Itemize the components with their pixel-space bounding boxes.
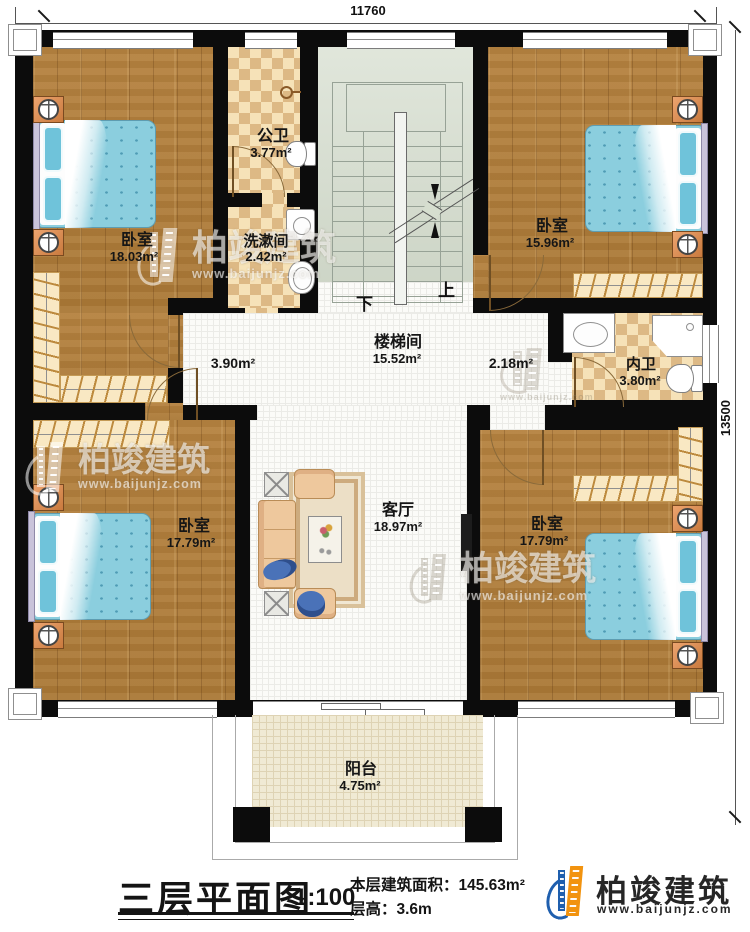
armchair — [294, 469, 335, 499]
window — [53, 32, 193, 49]
room-label: 洗漱间 — [243, 234, 288, 249]
room-area: 2.18m² — [489, 356, 533, 370]
grid-marker — [8, 688, 42, 720]
room-area: 18.03m² — [110, 250, 158, 263]
window — [347, 32, 455, 49]
stair-edge-line — [363, 132, 364, 302]
room-area: 15.96m² — [526, 236, 574, 249]
brand-url: www.baijunjz.com — [597, 902, 733, 916]
watermark-url: www.baijunjz.com — [192, 266, 336, 281]
stair-direction-arrow-up — [431, 222, 439, 238]
room-area: 3.80m² — [619, 374, 660, 387]
room-area: 17.79m² — [520, 534, 568, 547]
floor-area-text: 本层建筑面积：145.63m² — [350, 873, 525, 895]
room-label: 卧室 — [121, 233, 153, 249]
window — [518, 701, 675, 718]
door-leaf — [489, 255, 491, 311]
brand-logo-icon — [26, 442, 70, 492]
watermark-name: 柏竣建筑 — [78, 443, 210, 478]
window — [702, 325, 719, 383]
window — [245, 32, 297, 49]
window — [523, 32, 667, 49]
dimension-tick — [38, 10, 51, 23]
wardrobe — [573, 273, 703, 298]
drawing-scale: 1:100 — [294, 884, 355, 912]
door-leaf — [542, 430, 544, 485]
coffee-table — [308, 516, 342, 563]
room-area: 2.42m² — [245, 250, 286, 263]
room-label: 客厅 — [382, 503, 414, 519]
dimension-line-top — [15, 23, 717, 24]
room-label: 卧室 — [178, 519, 210, 535]
side-table — [264, 591, 289, 616]
watermark-url: www.baijunjz.com — [78, 477, 210, 491]
toilet — [666, 362, 703, 395]
dimension-top-value: 11760 — [350, 3, 385, 18]
title-underline — [118, 912, 354, 915]
nightstand — [672, 642, 703, 669]
balcony-column — [465, 807, 502, 842]
door-gap — [473, 255, 488, 298]
nightstand — [672, 96, 703, 123]
room-area: 18.97m² — [374, 520, 422, 533]
ensuite-sink-counter — [563, 313, 615, 353]
balcony-column — [233, 807, 270, 842]
side-table — [264, 472, 289, 497]
wardrobe — [573, 475, 678, 502]
wall-segment — [488, 298, 717, 313]
room-area: 17.79m² — [167, 536, 215, 549]
nightstand — [33, 229, 64, 256]
brand-logo-icon — [410, 554, 452, 600]
dimension-line-right — [735, 30, 736, 825]
wall-segment — [168, 298, 228, 313]
stair-up-label: 上 — [438, 282, 455, 299]
floor-height-text: 层高：3.6m — [350, 897, 432, 919]
room-label: 卧室 — [531, 517, 563, 533]
room-label: 公卫 — [257, 129, 289, 145]
door-gap — [490, 405, 545, 430]
title-underline — [118, 919, 354, 920]
watermark: 柏竣建筑 www.baijunjz.com — [138, 228, 336, 282]
nightstand — [33, 622, 64, 649]
door-leaf — [232, 146, 234, 197]
dimension-tick — [694, 10, 707, 23]
room-label: 阳台 — [345, 762, 377, 778]
towel-ring-stem — [292, 91, 301, 93]
bed — [585, 125, 703, 232]
brand-logo-icon — [547, 866, 589, 916]
hall-living-opening — [257, 405, 467, 420]
person-figure — [297, 591, 325, 617]
stair-direction-arrow-down — [431, 184, 439, 200]
dimension-right-value: 13500 — [718, 400, 733, 436]
bed — [33, 513, 151, 620]
room-area: 15.52m² — [373, 352, 421, 365]
room-area: 3.90m² — [211, 356, 255, 370]
nightstand — [33, 96, 64, 123]
room-label: 卧室 — [536, 219, 568, 235]
wardrobe — [33, 272, 60, 403]
wardrobe — [678, 427, 703, 502]
stair-edge-line — [440, 132, 441, 302]
stair-handrail — [394, 112, 407, 305]
nightstand — [672, 231, 703, 258]
grid-marker — [690, 692, 724, 724]
watermark-url: www.baijunjz.com — [460, 588, 596, 603]
bed — [585, 533, 703, 640]
door-leaf — [196, 368, 198, 420]
stair-down-label: 下 — [356, 296, 373, 313]
watermark: 柏竣建筑 www.baijunjz.com — [26, 442, 210, 492]
nightstand — [672, 505, 703, 532]
grid-marker — [8, 24, 42, 56]
grid-marker — [688, 24, 722, 56]
room-label: 楼梯间 — [374, 335, 422, 351]
watermark-name: 柏竣建筑 — [460, 552, 596, 588]
room-area: 3.77m² — [250, 146, 291, 159]
watermark: 柏竣建筑 www.baijunjz.com — [410, 552, 596, 603]
door-leaf — [178, 315, 180, 368]
room-area: 4.75m² — [339, 779, 380, 792]
room-label: 内卫 — [626, 357, 656, 372]
floor-plan-page: 11760 13500 — [0, 0, 750, 932]
bed — [38, 120, 156, 228]
window — [58, 701, 217, 718]
